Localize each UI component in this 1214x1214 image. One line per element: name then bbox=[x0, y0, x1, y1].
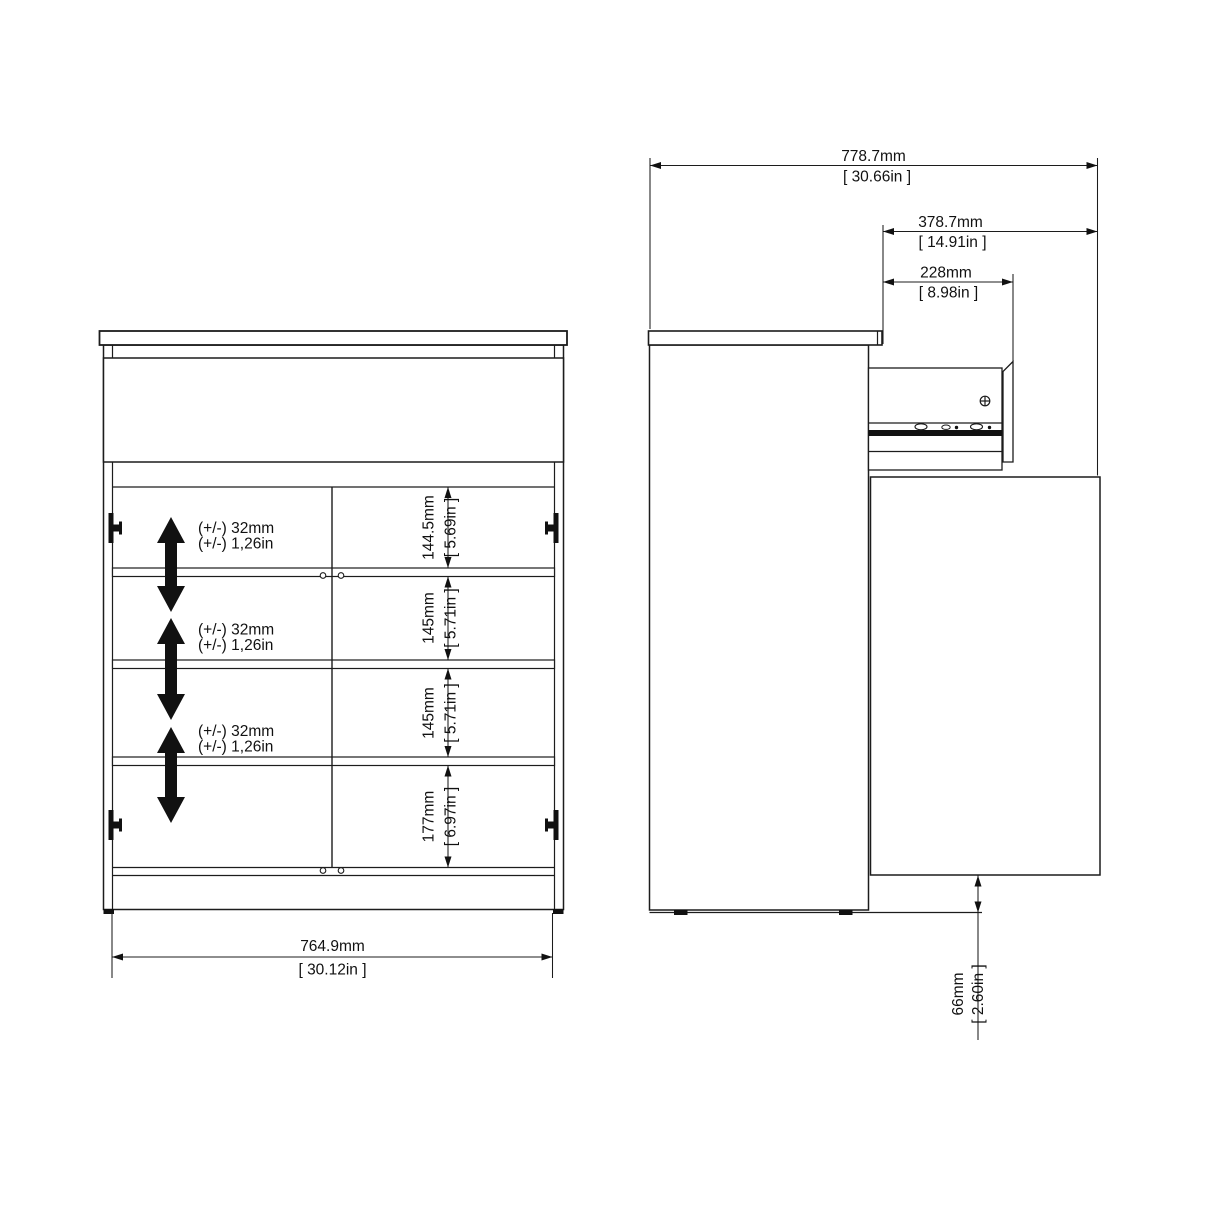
dim-mm: 378.7mm bbox=[918, 214, 983, 231]
dim-mm: 145mm bbox=[421, 592, 438, 644]
slide-roller bbox=[915, 424, 927, 430]
cabinet-dimension-drawing: (+/-) 32mm (+/-) 1,26in (+/-) 32mm (+/-)… bbox=[0, 0, 1214, 1214]
width-dimension: 764.9mm [ 30.12in ] bbox=[112, 913, 553, 979]
technical-drawing-page: (+/-) 32mm (+/-) 1,26in (+/-) 32mm (+/-)… bbox=[0, 0, 1214, 1214]
shelf-adjust-label-mm: (+/-) 32mm bbox=[198, 520, 274, 537]
dim-mm: 144.5mm bbox=[421, 495, 438, 560]
side-top-panel bbox=[649, 331, 883, 345]
dim-mm: 145mm bbox=[421, 687, 438, 739]
shelf-line-3 bbox=[113, 757, 555, 766]
knob-hole bbox=[338, 868, 344, 874]
dim-inch: [ 6.97in ] bbox=[443, 787, 460, 846]
knob-hole bbox=[320, 868, 326, 874]
knob-hole bbox=[338, 573, 344, 579]
dim-mm: 177mm bbox=[421, 791, 438, 843]
floor-clearance-dimension: 66mm [ 2.60in ] bbox=[950, 876, 987, 1041]
dim-inch: [ 30.66in ] bbox=[843, 169, 911, 186]
drawer-extension-dimension: 228mm [ 8.98in ] bbox=[883, 265, 1013, 362]
dim-inch: [ 2.60in ] bbox=[970, 964, 987, 1023]
foot bbox=[839, 910, 853, 915]
drawer-extended bbox=[869, 362, 1014, 471]
drawer-box bbox=[869, 368, 1003, 470]
dim-mm: 228mm bbox=[920, 265, 972, 282]
screw-cam-icon bbox=[980, 396, 990, 406]
knob-hole bbox=[320, 573, 326, 579]
slide-rivet bbox=[988, 426, 991, 429]
dim-inch: [ 30.12in ] bbox=[298, 962, 366, 979]
open-extension-dimension: 378.7mm [ 14.91in ] bbox=[883, 214, 1098, 344]
cabinet-side-view: 778.7mm [ 30.66in ] 378.7mm [ 14.91in ] … bbox=[649, 148, 1101, 1040]
shelf-adjust-label-inch: (+/-) 1,26in bbox=[198, 637, 273, 654]
foot bbox=[674, 910, 688, 915]
foot bbox=[553, 909, 564, 914]
dim-mm: 778.7mm bbox=[841, 148, 906, 165]
dim-inch: [ 5.71in ] bbox=[443, 683, 460, 742]
slide-rivet bbox=[955, 426, 958, 429]
drawer-front-panel bbox=[104, 358, 564, 462]
shelf-adjust-label-inch: (+/-) 1,26in bbox=[198, 536, 273, 553]
side-body-outline bbox=[650, 345, 869, 910]
dim-inch: [ 14.91in ] bbox=[918, 234, 986, 251]
dim-mm: 66mm bbox=[950, 972, 967, 1015]
dim-mm: 764.9mm bbox=[300, 938, 365, 955]
drawer-front-edge bbox=[1003, 362, 1013, 463]
dim-inch: [ 5.69in ] bbox=[443, 498, 460, 557]
shelf-adjust-label-mm: (+/-) 32mm bbox=[198, 723, 274, 740]
slide-roller bbox=[942, 425, 950, 429]
top-panel bbox=[100, 331, 568, 345]
shelf-adjust-label-mm: (+/-) 32mm bbox=[198, 622, 274, 639]
dim-inch: [ 8.98in ] bbox=[919, 285, 978, 302]
slide-roller bbox=[971, 424, 983, 430]
cabinet-front-view: (+/-) 32mm (+/-) 1,26in (+/-) 32mm (+/-)… bbox=[100, 331, 568, 979]
open-door-panel bbox=[871, 477, 1101, 875]
dim-inch: [ 5.71in ] bbox=[443, 588, 460, 647]
shelf-line-2 bbox=[113, 660, 555, 669]
drawer-slide-rail bbox=[869, 430, 1003, 436]
shelf-line-1 bbox=[113, 568, 555, 577]
shelf-adjust-label-inch: (+/-) 1,26in bbox=[198, 739, 273, 756]
